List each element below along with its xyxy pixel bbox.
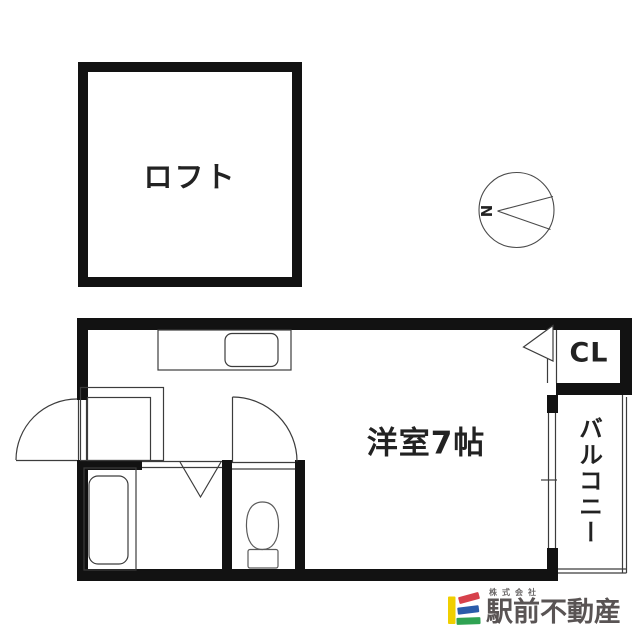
wall-bottom: [77, 569, 558, 581]
toilet-tank: [248, 550, 278, 569]
entry-door-swing-arc: [16, 399, 77, 460]
bathtub: [89, 476, 128, 564]
logo-mark-yellow-bar: [448, 597, 456, 625]
entry-step-inner: [88, 398, 151, 461]
wall-window-post-top: [547, 395, 558, 413]
logo-mark-red-bar: [458, 592, 480, 604]
wall-left-upper: [77, 330, 88, 400]
company-name-label: 駅前不動産: [486, 599, 636, 626]
entry-door-jambs: [79, 400, 87, 460]
balcony-label: バルコニー: [572, 416, 607, 546]
floor-plan-page: ロフト 洋室7帖 CL バルコニー N 株式会社 駅前不動産: [0, 0, 640, 640]
main-room-label: 洋室7帖: [367, 418, 486, 463]
toilet-threshold: [232, 463, 295, 470]
wall-left-lower: [77, 460, 88, 581]
toilet-bowl: [246, 502, 278, 550]
logo-mark-green-bar: [456, 617, 480, 625]
wall-window-post-bottom: [547, 548, 558, 569]
toilet-door-swing-arc: [233, 397, 298, 462]
loft-label: ロフト: [143, 154, 236, 196]
logo-mark-blue-bar: [457, 605, 479, 615]
compass-north-label: N: [477, 201, 497, 221]
fixture-group: [246, 502, 278, 568]
thin-line-group: [16, 326, 627, 574]
wall-closet-bottom: [556, 383, 632, 395]
closet-door-symbol: [524, 326, 554, 362]
wall-toilet-room-divider: [295, 460, 305, 569]
loft-room: ロフト: [78, 62, 302, 287]
wall-bath-toilet-divider: [222, 460, 232, 569]
logo-mark: [448, 592, 481, 625]
compass-needle-lines: [498, 197, 554, 230]
closet-label: CL: [569, 338, 608, 369]
company-logo: 株式会社 駅前不動産: [486, 587, 636, 626]
kitchen-sink: [225, 334, 278, 367]
